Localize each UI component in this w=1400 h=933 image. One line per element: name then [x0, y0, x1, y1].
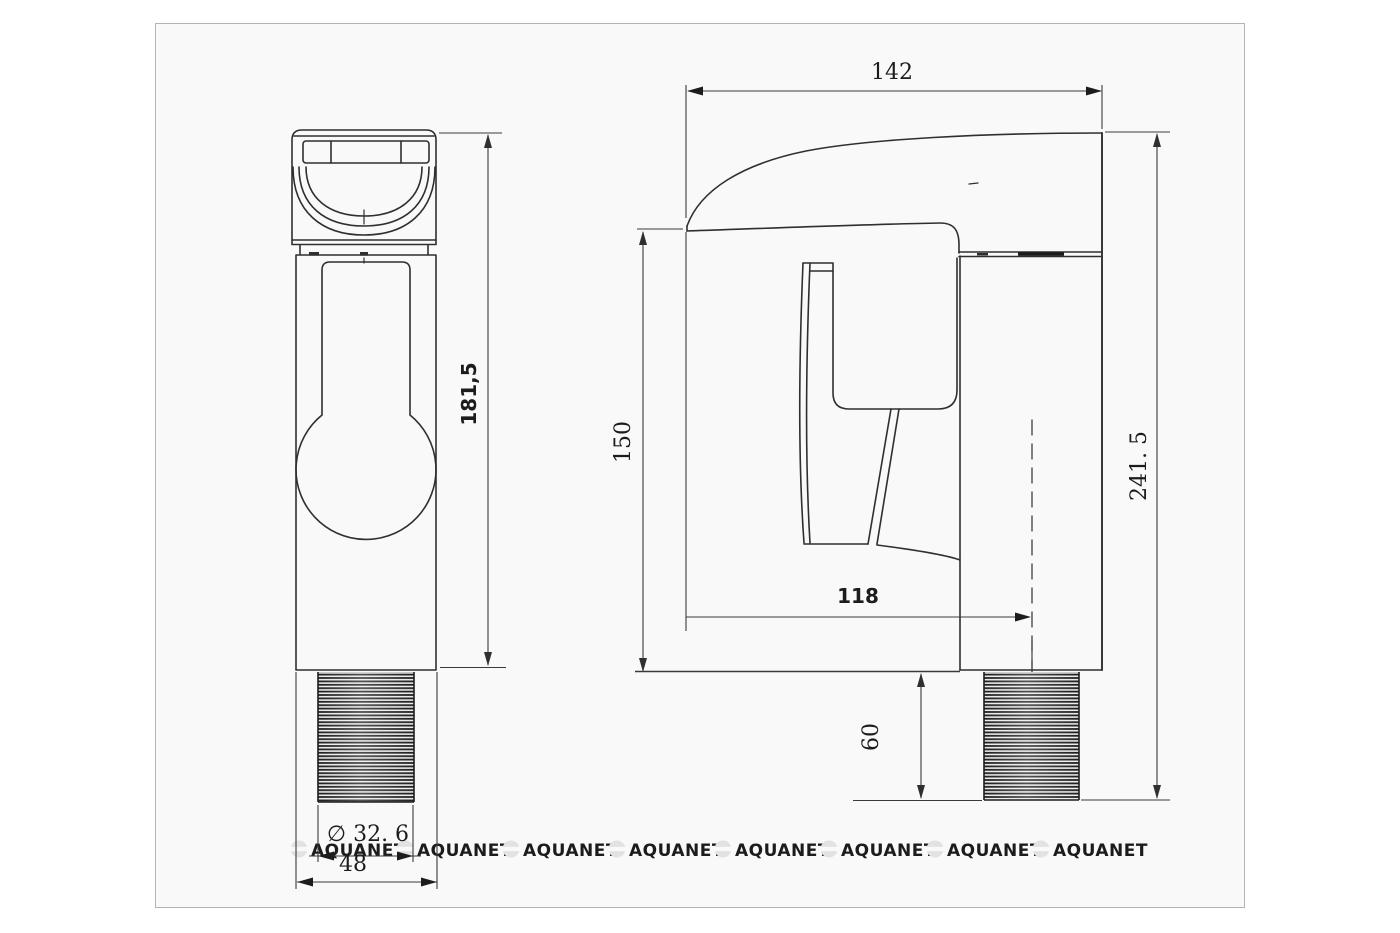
front-body-seam-tick [309, 252, 319, 256]
front-body-seam-tick [360, 252, 368, 256]
dim-label-front-height: 181,5 [457, 362, 481, 425]
dim-label-spout-height: 150 [611, 421, 636, 463]
side-cap-seam-dark-segment [1018, 252, 1064, 255]
watermark-text: AQUANET [841, 841, 936, 861]
dim-label-base-width: 48 [339, 852, 367, 877]
dim-label-total-height: 241. 5 [1127, 431, 1152, 501]
watermark-text: AQUANET [523, 841, 618, 861]
dim-label-base-depth: 118 [837, 584, 879, 608]
drawing-page: AQUANET AQUANET AQUANET AQUANET AQUANET … [0, 0, 1400, 933]
watermark-text: AQUANET [735, 841, 830, 861]
dim-label-side-reach: 142 [871, 60, 913, 85]
watermark-text: AQUANET [947, 841, 1042, 861]
side-thread [984, 672, 1079, 800]
watermark-text: AQUANET [417, 841, 512, 861]
dim-label-thread-length: 60 [859, 723, 884, 751]
thread-sheen [984, 672, 1079, 800]
watermark-text: AQUANET [629, 841, 724, 861]
thread-sheen [318, 672, 414, 802]
dim-label-thread-diameter: ∅ 32. 6 [327, 822, 409, 847]
front-thread [318, 672, 414, 802]
watermark-row: AQUANET AQUANET AQUANET AQUANET AQUANET … [290, 841, 1148, 862]
watermark-text: AQUANET [1053, 841, 1148, 861]
side-cap-seam-tick [977, 253, 988, 255]
